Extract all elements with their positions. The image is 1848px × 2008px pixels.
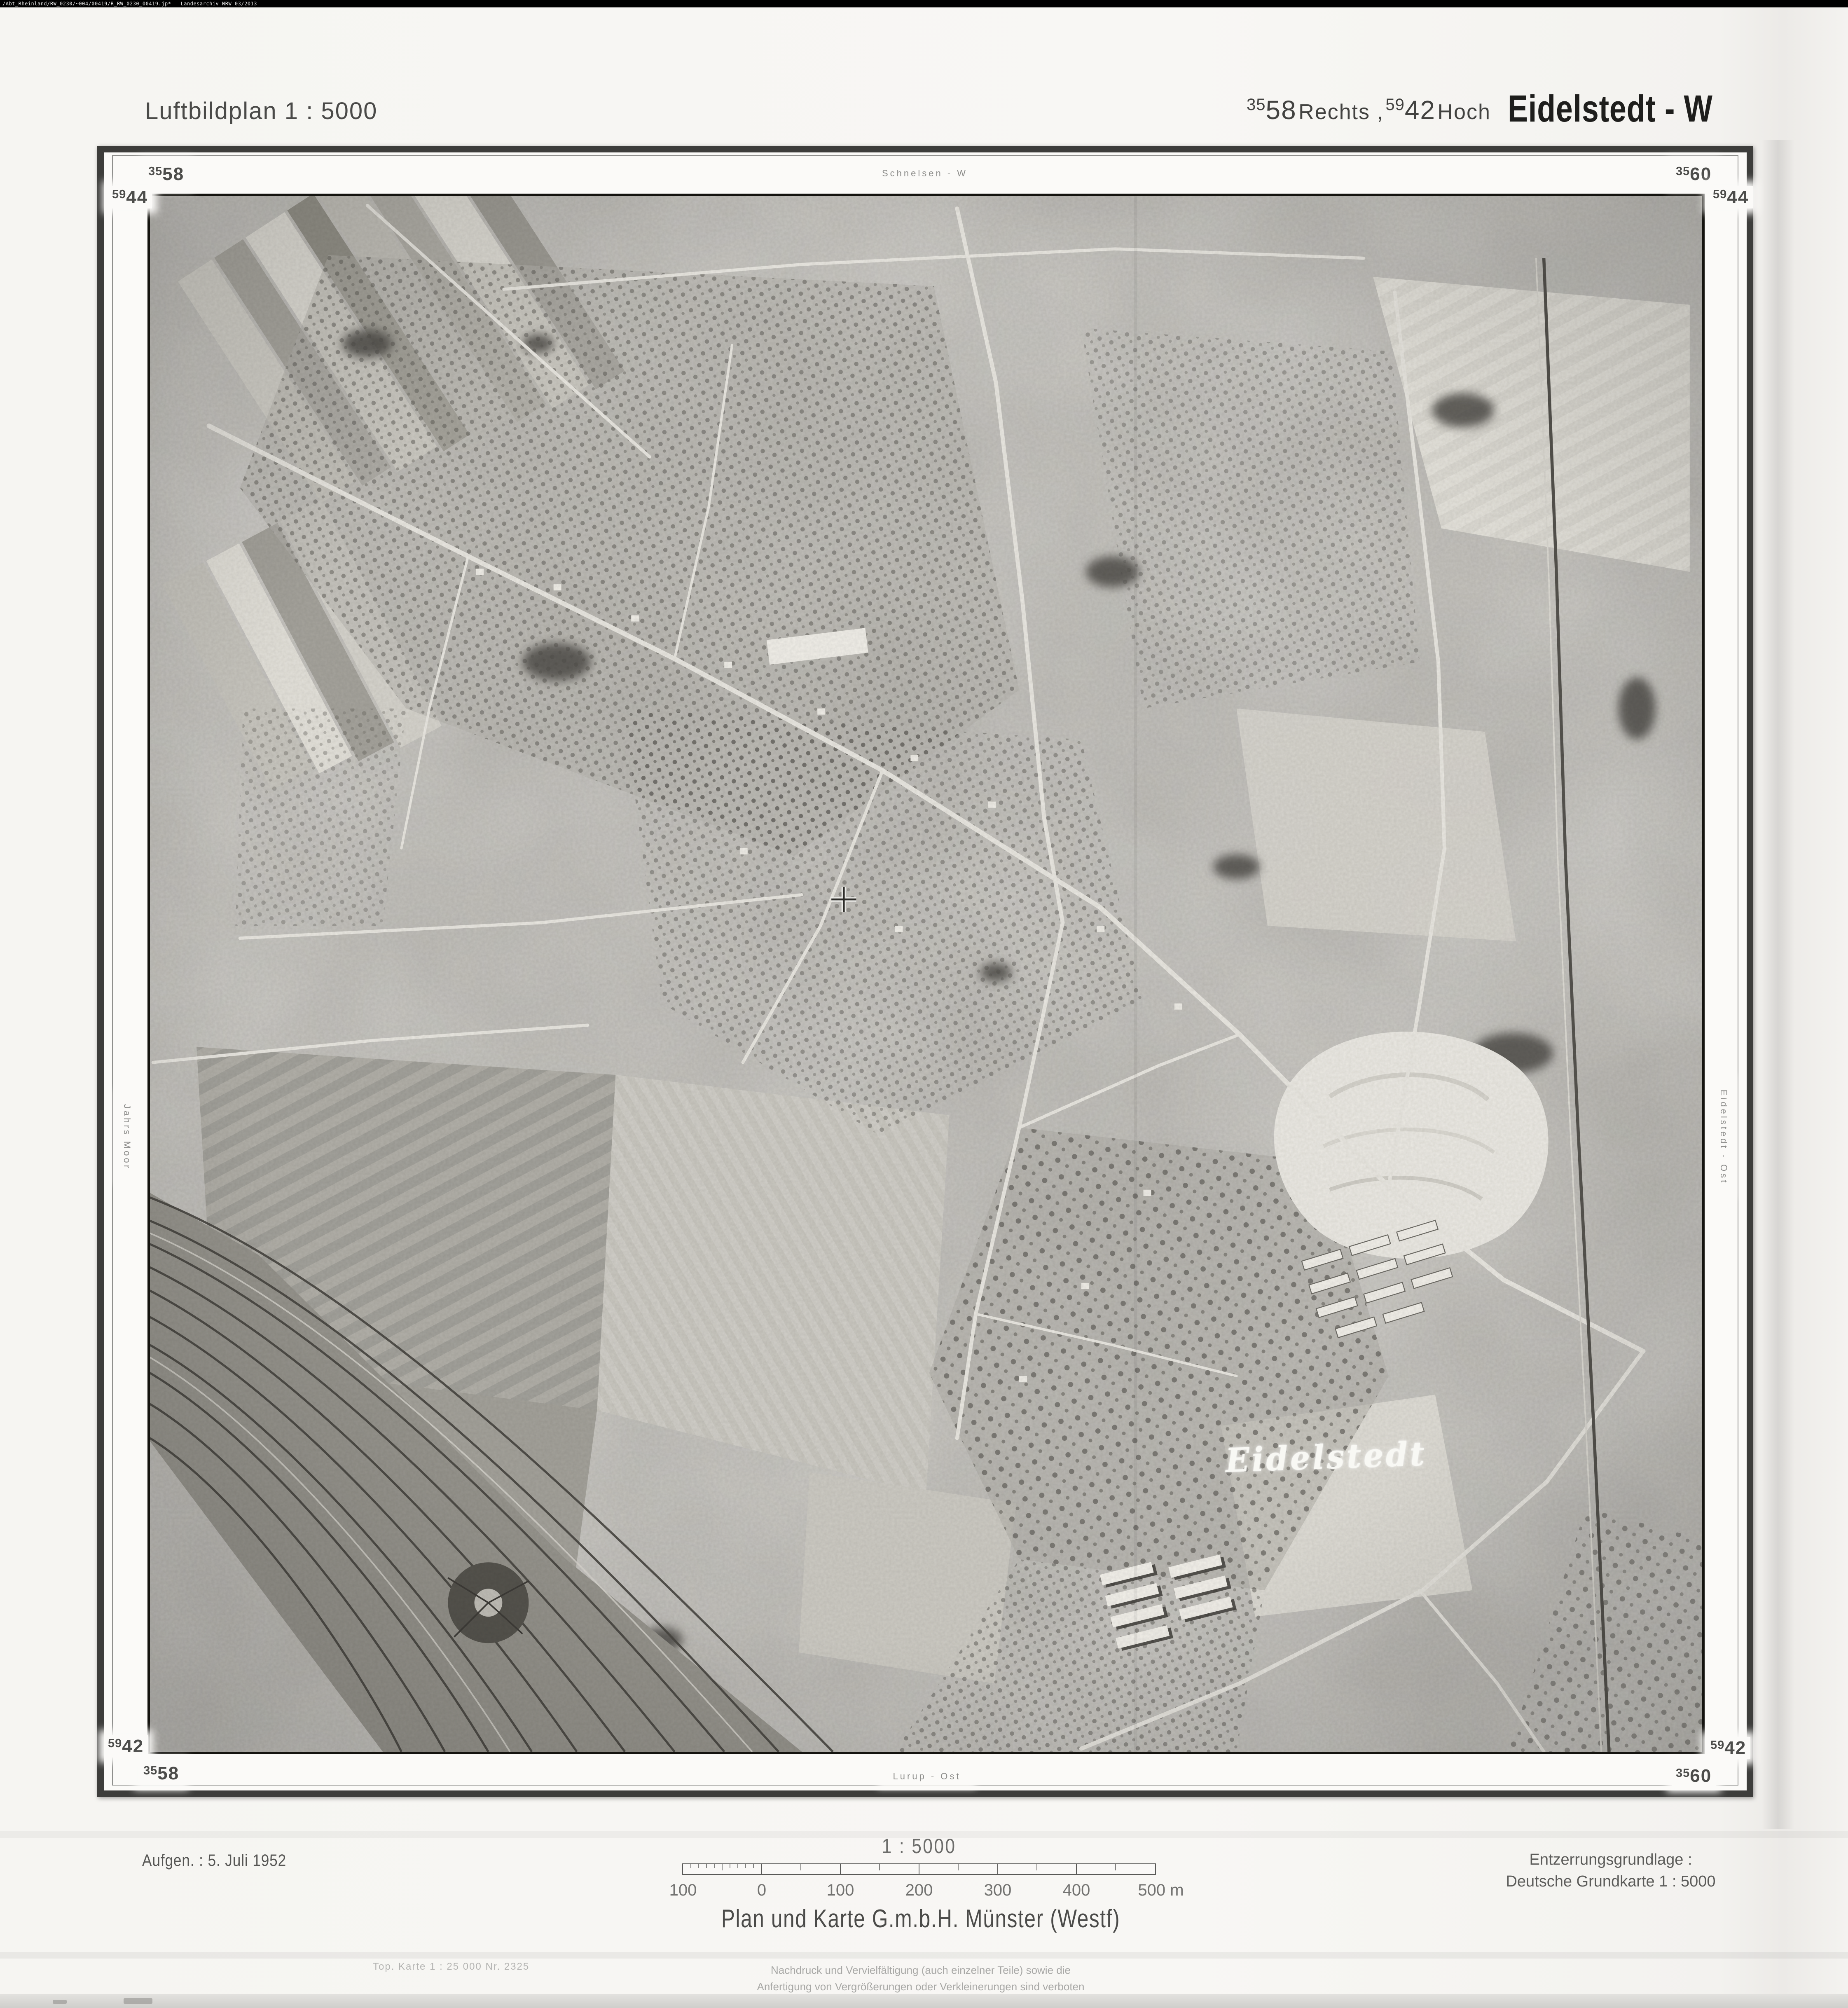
corner-coord-left-bottom-hoch: 5942 xyxy=(104,1735,148,1758)
scan-band xyxy=(0,1952,1848,1959)
corner-coord-bottom-right-rechts: 3560 xyxy=(1672,1765,1716,1787)
photo-date: Aufgen. : 5. Juli 1952 xyxy=(142,1851,286,1870)
publisher-imprint: Plan und Karte G.m.b.H. Münster (Westf) xyxy=(721,1904,1120,1933)
grid-rechts-superscript: 35 xyxy=(1247,96,1266,114)
rectification-line2: Deutsche Grundkarte 1 : 5000 xyxy=(1491,1871,1730,1893)
scan-smudge xyxy=(124,1998,152,2004)
scale-num-100: 100 xyxy=(827,1881,854,1900)
grid-rechts-word: Rechts , xyxy=(1298,100,1384,124)
aerial-photo xyxy=(147,194,1705,1754)
archive-reference-text: /Abt_Rheinland/RW_0230/~004/00419/R_RW_0… xyxy=(2,1,257,7)
photo-place-label-overlay: Eidelstedt xyxy=(1225,1434,1427,1480)
grid-hoch-value: 42 xyxy=(1405,95,1436,125)
scanner-edge-band xyxy=(0,1994,1848,2008)
grid-rechts-value: 58 xyxy=(1266,95,1297,125)
topo-map-reference: Top. Karte 1 : 25 000 Nr. 2325 xyxy=(373,1961,529,1973)
neighbour-sheet-right: Eidelstedt - Ost xyxy=(1716,1079,1731,1195)
scale-num-500m: 500 m xyxy=(1138,1881,1184,1900)
scale-num-300: 300 xyxy=(984,1881,1012,1900)
archive-reference-strip: /Abt_Rheinland/RW_0230/~004/00419/R_RW_0… xyxy=(0,0,1848,7)
scale-bar xyxy=(682,1863,1156,1877)
neighbour-sheet-bottom: Lurup - Ost xyxy=(882,1769,971,1784)
sheet-name: Eidelstedt - W xyxy=(1508,87,1713,131)
scanned-map-sheet: /Abt_Rheinland/RW_0230/~004/00419/R_RW_0… xyxy=(0,0,1848,2008)
scale-num-0: 0 xyxy=(757,1881,766,1900)
aerial-photo-graphic xyxy=(150,196,1702,1752)
grid-hoch-superscript: 59 xyxy=(1385,96,1405,114)
grid-reference: 3558 Rechts , 5942 Hoch xyxy=(1247,95,1491,125)
scan-band xyxy=(0,1831,1848,1838)
copyright-note: Nachdruck und Vervielfältigung (auch ein… xyxy=(725,1962,1116,1995)
map-type-title: Luftbildplan 1 : 5000 xyxy=(145,97,377,125)
grid-hoch-word: Hoch xyxy=(1437,100,1490,124)
corner-coord-right-bottom-hoch: 5942 xyxy=(1706,1737,1750,1759)
corner-coord-left-top-hoch: 5944 xyxy=(108,186,152,208)
corner-coord-top-right-rechts: 3560 xyxy=(1672,163,1716,185)
scale-num-200: 200 xyxy=(905,1881,933,1900)
scale-num-minus100: 100 xyxy=(669,1881,697,1900)
corner-coord-top-left-rechts: 3558 xyxy=(144,163,188,185)
neighbour-sheet-left: Jahrs Moor xyxy=(119,1093,134,1181)
neighbour-sheet-top: Schnelsen - W xyxy=(871,166,978,181)
rectification-note: Entzerrungsgrundlage : Deutsche Grundkar… xyxy=(1491,1849,1730,1893)
copyright-line1: Nachdruck und Vervielfältigung (auch ein… xyxy=(725,1962,1116,1978)
scan-shadow xyxy=(1761,140,1794,1829)
rectification-line1: Entzerrungsgrundlage : xyxy=(1491,1849,1730,1871)
corner-coord-right-top-hoch: 5944 xyxy=(1709,186,1753,208)
corner-coord-bottom-left-rechts: 3558 xyxy=(139,1762,183,1785)
scan-smudge xyxy=(53,2000,67,2004)
scale-num-400: 400 xyxy=(1063,1881,1090,1900)
copyright-line2: Anfertigung von Vergrößerungen oder Verk… xyxy=(725,1978,1116,1995)
